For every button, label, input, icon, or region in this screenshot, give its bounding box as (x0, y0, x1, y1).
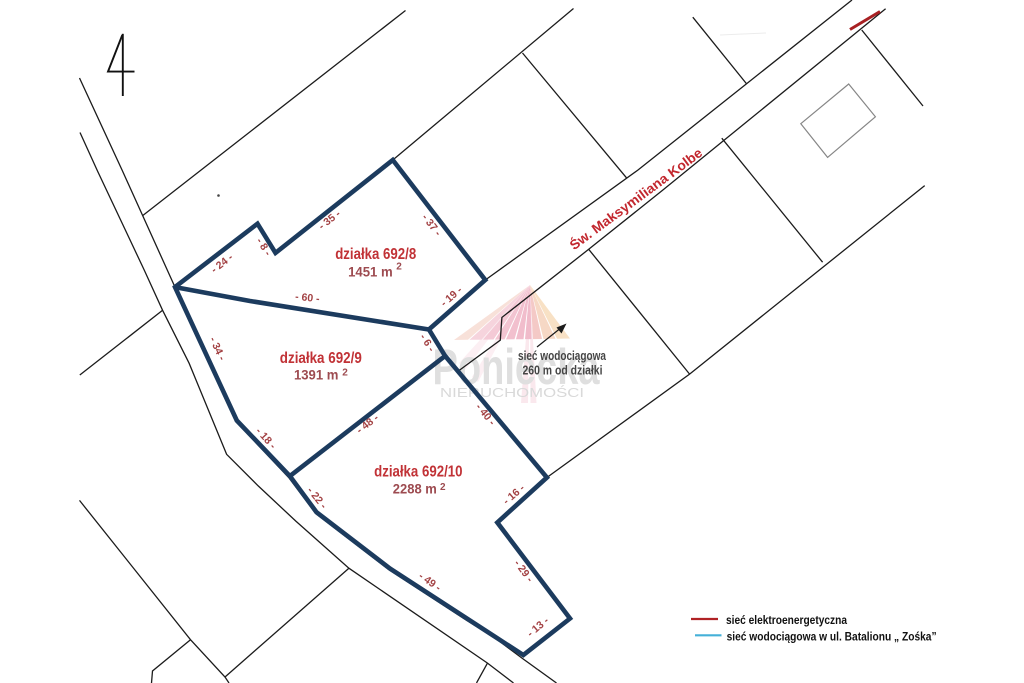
svg-text:1451 m: 1451 m (348, 264, 393, 280)
svg-text:1391 m: 1391 m (294, 367, 339, 383)
svg-text:260 m od działki: 260 m od działki (523, 363, 603, 378)
svg-text:NIERUCHOMOŚCI: NIERUCHOMOŚCI (440, 385, 584, 400)
svg-text:2: 2 (440, 482, 446, 493)
svg-text:działka 692/9: działka 692/9 (280, 350, 362, 367)
svg-text:działka 692/8: działka 692/8 (335, 246, 416, 263)
svg-text:sieć wodociągowa w ul. Batalio: sieć wodociągowa w ul. Batalionu „ Zośka… (727, 630, 937, 644)
svg-text:działka 692/10: działka 692/10 (374, 464, 462, 481)
svg-text:2: 2 (342, 367, 348, 378)
svg-text:sieć wodociągowa: sieć wodociągowa (518, 348, 607, 363)
svg-text:2288 m: 2288 m (393, 481, 437, 497)
svg-text:2: 2 (396, 262, 402, 273)
svg-text:sieć elektroenergetyczna: sieć elektroenergetyczna (726, 613, 847, 627)
